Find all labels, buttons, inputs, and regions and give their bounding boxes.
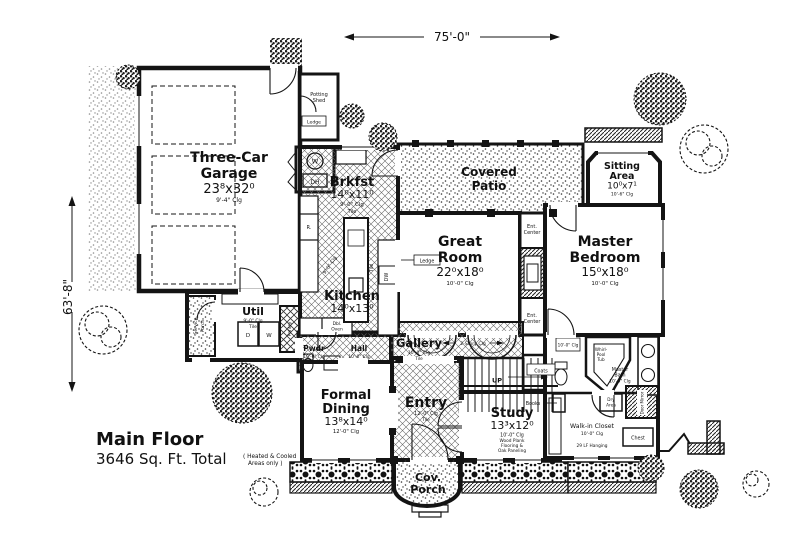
great-room-dims: 22⁰x18⁰ [436, 265, 483, 279]
garage-name-2: Garage [201, 166, 258, 182]
two-story-label: 2-Story Clg [460, 341, 486, 347]
dh-label: DH [310, 179, 319, 186]
master-name-2: Bedroom [570, 250, 641, 266]
tree-fluffy-right [680, 125, 728, 173]
util-floor: Tile [248, 324, 257, 330]
shrub-potting-1 [340, 104, 364, 128]
tree-small-topleft [116, 65, 140, 89]
great-room-name-2: Room [438, 250, 483, 266]
entry-name: Entry [405, 395, 447, 411]
sitting-clg: 10'-6" Clg [611, 192, 633, 198]
tree-small-bottom [250, 478, 278, 506]
master-clg: 10'-0" Clg [591, 281, 618, 287]
pwdr-name: Pwdr [303, 344, 325, 353]
brkfst-clg: 9'-0" Clg [340, 202, 364, 208]
dim-arrow-down [69, 382, 76, 392]
brkfst-floor: Tile [347, 209, 357, 215]
dbl-oven-label-1: Dbl. [333, 321, 342, 327]
dim-arrow-up [69, 196, 76, 206]
washer-label: W [266, 333, 272, 339]
shrub-br-1 [638, 455, 664, 481]
gallery-floor: Tile [414, 356, 423, 361]
kitchen-left-counter [300, 196, 318, 292]
dry-area-label-2: Area [606, 403, 616, 408]
door-apron [270, 38, 302, 67]
potting-shed-name-2: Shed [313, 98, 326, 104]
door-mirror-label: Door Mirror [640, 391, 645, 414]
driveway [88, 66, 138, 292]
floor-plan-drawing: 75'-0" 63'-8" Three-Car Garage 23⁸x32⁰ 9… [0, 0, 800, 533]
tree-small-br [743, 471, 769, 497]
dry-area-label-1: Dry [607, 397, 615, 402]
study-clg: 10'-0" Clg [500, 433, 524, 439]
garage-clg: 9'-4" Clg [216, 197, 242, 204]
water-heater-label: W [312, 158, 319, 166]
plan-title: Main Floor [96, 429, 204, 450]
walkin-note: 29 LF Hanging [576, 443, 607, 449]
hall-clg: 10'-0" Clg [348, 354, 369, 360]
dim-width-label: 75'-0" [434, 30, 470, 44]
fireplace-insert [527, 264, 538, 282]
kitchen-floor: Tile [369, 264, 375, 273]
sitting-dims: 10⁰x7¹ [607, 182, 637, 192]
up-label: UP [492, 377, 502, 385]
master-name-1: Master [578, 234, 633, 250]
entry-clg: 12'-0" Clg [414, 411, 438, 417]
coats-label: Coats [534, 369, 548, 375]
study-dims: 13³x12⁰ [490, 419, 534, 432]
service-porch-name-2: Porch [200, 320, 206, 333]
study-note-3: Oak Paneling [498, 448, 526, 454]
tree-fluffy-left [79, 306, 127, 354]
floor-plan-sheet: 75'-0" 63'-8" Three-Car Garage 23⁸x32⁰ 9… [0, 0, 800, 533]
dim-arrow-right [550, 34, 560, 41]
flower-beds [290, 462, 656, 493]
shrub-potting-2 [369, 123, 397, 151]
kitchen-dims: 14⁰x13⁰ [330, 302, 374, 315]
tree-dark-topright [634, 73, 686, 125]
hall-clg-box-label: 10'-0" Clg [558, 343, 579, 348]
garage-name-1: Three-Car [190, 150, 268, 166]
util-clg: 9'-0" Clg [243, 318, 262, 324]
entry-floor: Tile [421, 417, 430, 423]
dining-name-1: Formal [321, 388, 371, 403]
dbl-oven-label-2: Oven [331, 327, 343, 333]
master-bath-clg: 10'-0" Clg [609, 379, 630, 385]
plan-note-2: Areas only ) [248, 461, 283, 467]
util-name: Util [242, 305, 264, 318]
gallery-name: Gallery [396, 336, 443, 350]
garage-dims: 23⁸x32⁰ [203, 182, 254, 197]
brkfst-dims: 14⁰x11⁰ [330, 188, 374, 201]
plan-note-1: ( Heated & Cooled [243, 454, 297, 460]
range-label: R. [307, 225, 312, 231]
shrub-br-2 [680, 470, 718, 508]
window-planter [585, 128, 662, 142]
service-porch-name-1: Service [193, 317, 199, 334]
patio-name-1: Covered [461, 165, 517, 179]
porch-name-2: Porch [410, 483, 445, 496]
master-bath-name-1: Master [612, 367, 628, 373]
ledge-label-2: Ledge [420, 259, 435, 265]
patio-name-2: Patio [472, 179, 507, 193]
dim-arrow-left [344, 34, 354, 41]
walkin-name: Walk-in Closet [570, 423, 615, 430]
dim-height-label: 63'-8" [61, 279, 75, 315]
great-room-clg: 10'-0" Clg [446, 281, 473, 287]
plan-sqft: 3646 Sq. Ft. Total [96, 450, 227, 468]
pantry-name: Pantry [287, 321, 293, 336]
ent-center-2b: Center [524, 319, 542, 325]
hall-name: Hall [351, 344, 367, 353]
dining-dims: 13⁸x14⁰ [324, 415, 368, 428]
dining-clg: 12'-0" Clg [333, 429, 359, 435]
dw-label: DW [384, 273, 390, 282]
chest-label: Chest [631, 436, 645, 442]
shrub-dark-center [212, 363, 272, 423]
fence [658, 421, 724, 454]
pwdr-clg: 10'-0" Clg [303, 354, 324, 360]
great-room-name-1: Great [438, 234, 482, 250]
brkfst-counter [336, 150, 366, 164]
walkin-clg: 10'-0" Clg [581, 431, 603, 437]
ledge-label-1: Ledge [307, 120, 321, 126]
title-block: Main Floor 3646 Sq. Ft. Total ( Heated &… [96, 429, 297, 468]
dryer-label: D [246, 333, 250, 339]
potting-shed-room [300, 74, 338, 140]
ent-center-1b: Center [524, 230, 542, 236]
master-dims: 15⁰x18⁰ [581, 265, 628, 279]
sitting-name-2: Area [610, 171, 635, 182]
whirlpool-label-3: Tub [596, 357, 605, 362]
master-bath-name-2: Bath [614, 373, 625, 379]
